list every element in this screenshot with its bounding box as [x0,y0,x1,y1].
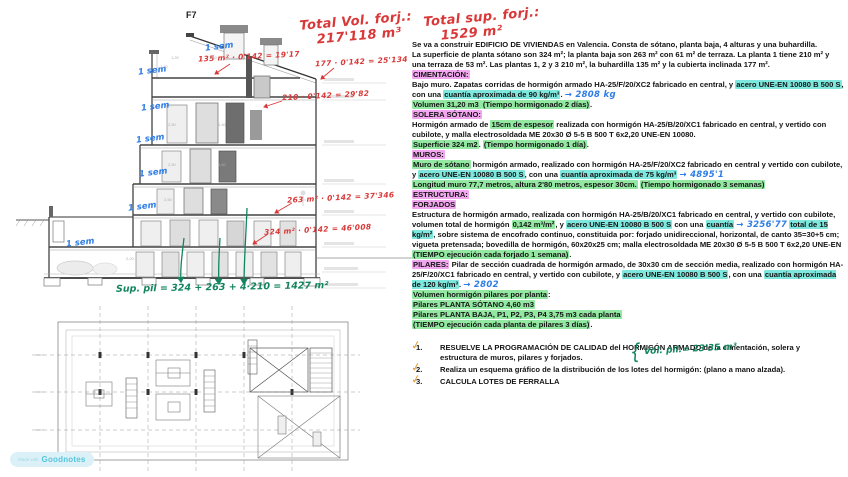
note-paragraph: Bajo muro. Zapatas corridas de hormigón … [412,80,844,100]
highlighted-text: Volumen hormigón pilares por planta [412,290,548,299]
highlighted-text: Pilares PLANTA SÓTANO 4,60 m3 [412,300,535,309]
floor-plan-drawing [28,298,368,477]
body-text: Hormigón armado de [412,120,490,129]
brace-mark: { [629,340,641,366]
highlighted-text: (Tiempo hormigonado 1 día) [483,140,587,149]
highlighted-text: SOLERA SÓTANO: [412,110,482,119]
body-text: , y [555,220,566,229]
highlighted-text: Muro de sótano [412,160,471,169]
note-paragraph: MUROS: [412,150,844,160]
body-text: , con una [525,170,560,179]
note-paragraph: Estructura de hormigón armado, realizada… [412,210,844,250]
green-vol-pil-text: Vol. pil.= 23'35 m³ [644,342,737,357]
highlighted-text: CIMENTACIÓN: [412,70,470,79]
note-paragraph: Muro de sótano hormigón armado, realizad… [412,160,844,180]
highlighted-text: acero UNE-EN 10080 B 500 S [622,270,728,279]
note-paragraph: (TIEMPO ejecución cada forjado 1 semana)… [412,250,844,260]
note-paragraph: FORJADOS [412,200,844,210]
dimension-label: 1,30 [160,64,168,69]
note-paragraph: Volumen hormigón pilares por planta: [412,290,844,300]
note-paragraph: Superficie 324 m2. (Tiempo hormigonado 1… [412,140,844,150]
task-number: 3. [416,377,422,387]
document-page: F7 Total Vol. forj.: 217'118 m³ 135 m² ·… [0,0,848,477]
highlighted-text: (TIEMPO ejecución cada planta de pilares… [412,320,590,329]
note-paragraph: Volumen 31,20 m3 (Tiempo hormigonado 2 d… [412,100,844,110]
note-paragraph: Pilares PLANTA BAJA, P1, P2, P3, P4 3,75… [412,310,844,320]
plan-detail-boxes [86,360,190,420]
body-text: , con una [728,270,763,279]
note-paragraph: ESTRUCTURA: [412,190,844,200]
highlighted-text: cuantía [706,220,735,229]
highlighted-text: 15cm de espesor [490,120,554,129]
note-paragraph: La superficie de planta sótano son 324 m… [412,50,844,70]
dimension-label: 1,20 [171,55,179,60]
highlighted-text: MUROS: [412,150,445,159]
task-text: CALCULA LOTES DE FERRALLA [440,377,560,387]
highlighted-text: Pilares PLANTA BAJA, P1, P2, P3, P4 3,75… [412,310,622,319]
task-item: ✓2.Realiza un esquema gráfico de la dist… [412,365,820,375]
handwritten-annotation: → 2802 [463,280,499,290]
note-paragraph: Se va a construir EDIFICIO DE VIVIENDAS … [412,40,844,50]
highlighted-text: (Tiempo hormigonado 2 días) [482,100,590,109]
highlighted-text: Superficie 324 m2 [412,140,479,149]
body-text: : [548,290,551,299]
body-text: Se va a construir EDIFICIO DE VIVIENDAS … [412,40,817,49]
highlighted-text: (Tiempo hormigonado 3 semanas) [640,180,766,189]
note-paragraph: Pilares PLANTA SÓTANO 4,60 m3 [412,300,844,310]
handwritten-annotation: → 2808 kg [565,90,616,100]
body-text: Bajo muro. Zapatas corridas de hormigón … [412,80,735,89]
highlighted-text: acero UNE-EN 10080 B 500 S [566,220,672,229]
note-paragraph: PILARES: Pilar de sección cuadrada de ho… [412,260,844,290]
highlighted-text: FORJADOS [412,200,456,209]
notes-paragraphs: Se va a construir EDIFICIO DE VIVIENDAS … [412,40,844,330]
section-label-f7: F7 [186,10,197,20]
red-note-total-surface: Total sup. forj.: 1529 m² [423,5,542,45]
handwritten-annotation: → 4895'1 [679,170,724,180]
watermark-prefix: Made with [18,457,39,462]
plan-grid-lines [36,306,360,474]
dimension-label: 1,40 [218,122,226,127]
dimension-label: 2,50 [168,122,176,127]
highlighted-text: cuantía aproximada de 90 kg/m³ [443,90,560,99]
dimension-label: 2,50 [168,162,176,167]
highlighted-text: (TIEMPO ejecución cada forjado 1 semana) [412,250,569,259]
note-paragraph: SOLERA SÓTANO: [412,110,844,120]
dimension-label: 1,40 [209,55,217,60]
task-item: ✓3.CALCULA LOTES DE FERRALLA [412,377,820,387]
highlighted-text: ESTRUCTURA: [412,190,469,199]
plan-stair-block [250,348,332,392]
handwritten-annotation: → 3256'77 [736,220,787,230]
body-text: . [590,320,592,329]
dimension-label: 1,40 [218,162,226,167]
goodnotes-watermark: Made with Goodnotes [10,452,94,467]
highlighted-text: Volumen 31,20 m3 [412,100,482,109]
plan-column-schedules [126,340,257,418]
task-item: ✓1.RESUELVE LA PROGRAMACIÓN DE CALIDAD d… [412,343,820,363]
body-text: . [587,140,589,149]
highlighted-text: 0,142 m³/m² [512,220,556,229]
highlighted-text: acero UNE-EN 10080 B 500 S [735,80,841,89]
cota-level-marks [322,83,386,288]
plan-roof-area [258,396,340,458]
dimension-label: 2,50 [164,197,172,202]
note-paragraph: Longitud muro 77,7 metros, altura 2'80 m… [412,180,844,190]
highlighted-text: PILARES: [412,260,449,269]
task-text: Realiza un esquema gráfico de la distrib… [440,365,785,375]
highlighted-text: cuantía aproximada de 75 kg/m³ [560,170,677,179]
highlighted-text: Longitud muro 77,7 metros, altura 2'80 m… [412,180,638,189]
body-text: . [590,100,592,109]
highlighted-text: acero UNE-EN 10080 B 500 S [418,170,524,179]
note-paragraph: Hormigón armado de 15cm de espesor reali… [412,120,844,140]
watermark-brand: Goodnotes [42,455,86,464]
dimension-label: 2,20 [126,256,134,261]
body-text: con una [672,220,705,229]
body-text: La superficie de planta sótano son 324 m… [412,50,829,69]
body-text: . [569,250,571,259]
notes-text-block: Se va a construir EDIFICIO DE VIVIENDAS … [412,40,844,389]
tasks-list: ✓1.RESUELVE LA PROGRAMACIÓN DE CALIDAD d… [412,343,844,387]
task-number: 1. [416,343,422,353]
note-paragraph: CIMENTACIÓN: [412,70,844,80]
note-paragraph: (TIEMPO ejecución cada planta de pilares… [412,320,844,330]
body-text: , sobre sistema de encofrado continuo, c… [412,230,841,249]
